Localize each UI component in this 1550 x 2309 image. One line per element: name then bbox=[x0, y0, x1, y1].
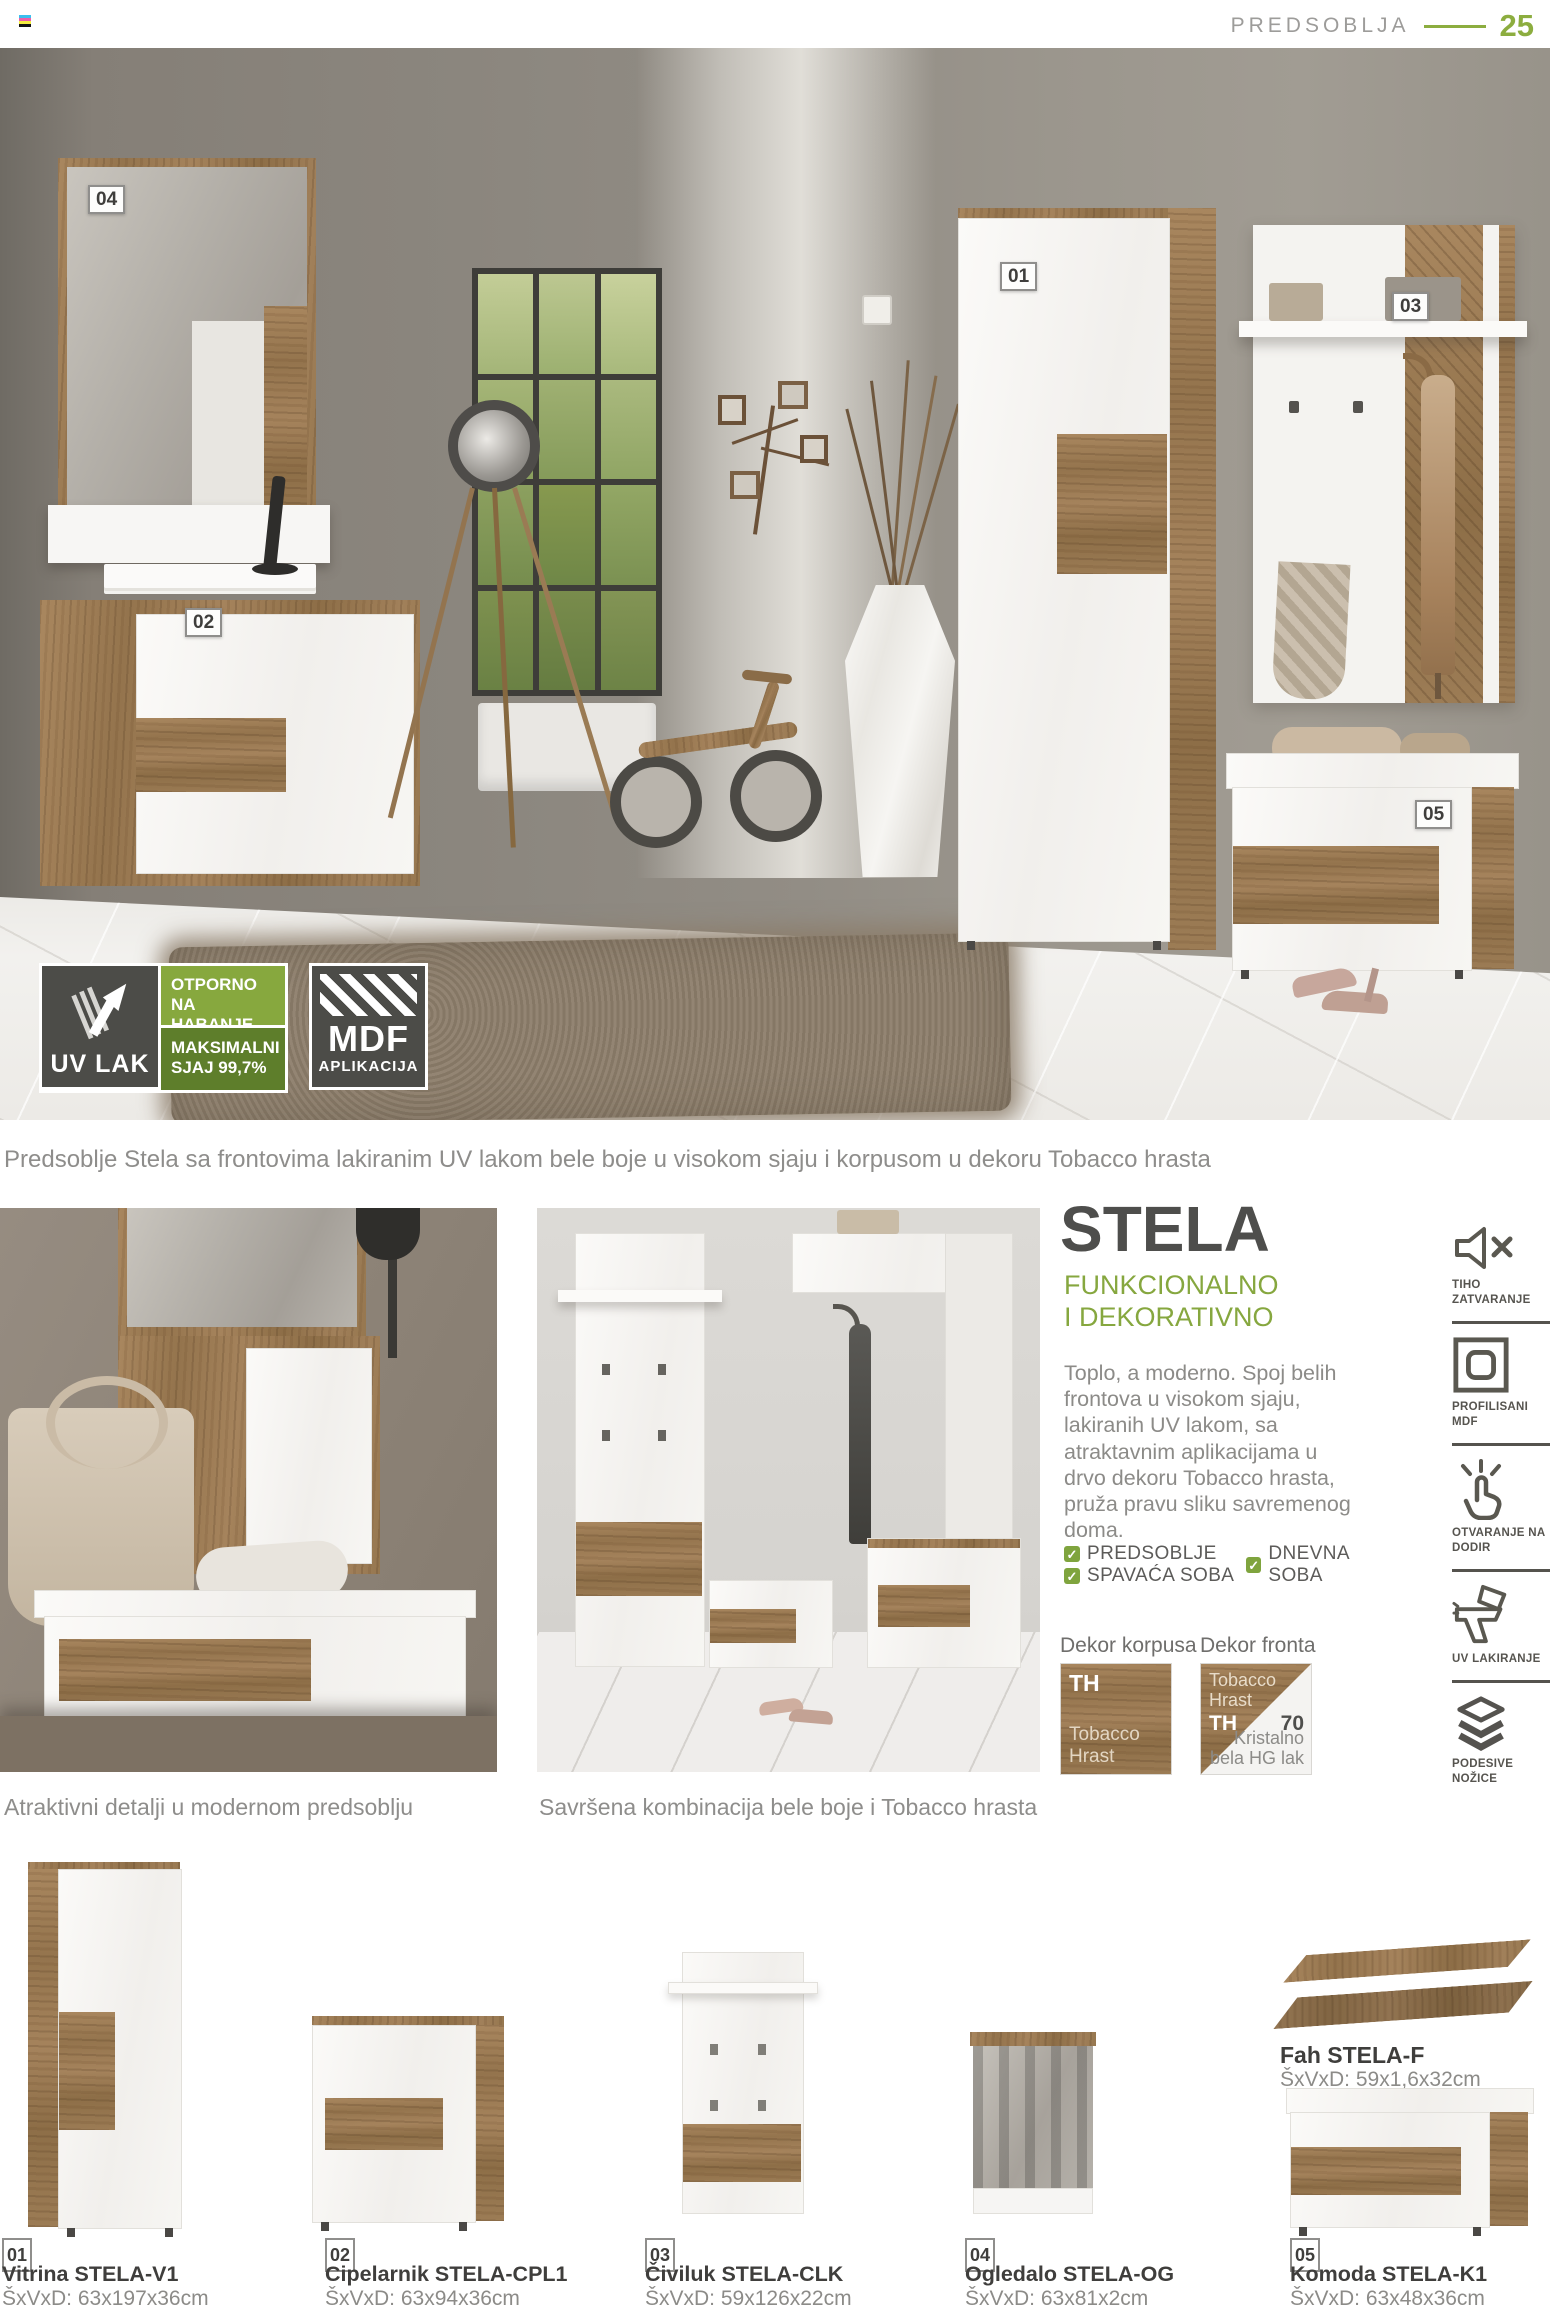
light-switch bbox=[862, 295, 892, 325]
civiluk-hook bbox=[758, 2100, 766, 2111]
ogledalo-glass bbox=[973, 2046, 1093, 2188]
product-dims: ŠxVxD: 63x48x36cm bbox=[1290, 2287, 1485, 2309]
page-number: 25 bbox=[1500, 8, 1534, 44]
feature-adjustable-feet: PODESIVE NOŽICE bbox=[1452, 1680, 1550, 1800]
decor-swatch-korpus: TH Tobacco Hrast bbox=[1060, 1663, 1172, 1775]
series-subtitle-line2: I DEKORATIVNO bbox=[1064, 1302, 1279, 1334]
vitrina-wood-applique bbox=[59, 2012, 115, 2130]
room-label: DNEVNA SOBA bbox=[1268, 1543, 1404, 1587]
uv-green-boxes: OTPORNO NA HABANJE MAKSIMALNI SJAJ 99,7% bbox=[161, 966, 285, 1090]
hero-tag-02: 02 bbox=[185, 608, 222, 637]
hero-tag-01: 01 bbox=[1000, 262, 1037, 291]
bench-wood-band bbox=[1233, 846, 1439, 924]
table-lamp-shade bbox=[356, 1208, 420, 1260]
hero-photo: 04 02 01 03 05 UV LAK OTPORNO NA HABANJE… bbox=[0, 48, 1550, 1120]
spray-gun-icon bbox=[1452, 1584, 1514, 1646]
series-subtitle-line1: FUNKCIONALNO bbox=[1064, 1270, 1279, 1302]
combo-cabinet-wood-band bbox=[878, 1585, 970, 1627]
decor-front-white-name-line2: bela HG lak bbox=[1210, 1748, 1304, 1768]
combo-coatrack-panel bbox=[575, 1233, 705, 1667]
header-rule bbox=[1424, 25, 1486, 28]
civiluk-wood-band bbox=[683, 2124, 801, 2182]
feature-quiet-close: TIHO ZATVARANJE bbox=[1452, 1212, 1550, 1321]
twig bbox=[899, 404, 960, 607]
decor-front-heading: Dekor fronta bbox=[1200, 1634, 1316, 1658]
room-label: PREDSOBLJE bbox=[1087, 1543, 1217, 1565]
balance-bike bbox=[610, 660, 825, 860]
feature-touch-open: OTVARANJE NA DODIR bbox=[1452, 1443, 1550, 1569]
product-name: Vitrina STELA-V1 bbox=[2, 2262, 178, 2287]
room-spavaca-soba: ✓ SPAVAĆA SOBA bbox=[1064, 1565, 1234, 1587]
bag-handle bbox=[46, 1376, 168, 1469]
product-name: Komoda STELA-K1 bbox=[1290, 2262, 1487, 2287]
series-description: Toplo, a moderno. Spoj belih frontova u … bbox=[1064, 1360, 1364, 1544]
ogledalo-bottom-bar bbox=[973, 2188, 1093, 2214]
photo-frame bbox=[718, 395, 746, 425]
feature-profiled-mdf: PROFILISANI MDF bbox=[1452, 1321, 1550, 1443]
cabinet-01-front bbox=[958, 218, 1170, 942]
coat-hook bbox=[1353, 401, 1363, 413]
product-image-komoda bbox=[1290, 2088, 1528, 2232]
decor-front-wood-name-line2: Hrast bbox=[1209, 1690, 1276, 1710]
profiled-mdf-icon bbox=[1452, 1336, 1510, 1394]
product-name: Cipelarnik STELA-CPL1 bbox=[325, 2262, 568, 2287]
product-name: Čiviluk STELA-CLK bbox=[645, 2262, 843, 2287]
photo-frame bbox=[778, 381, 808, 409]
combo-hook bbox=[602, 1430, 610, 1441]
gallery-left-caption: Atraktivni detalji u modernom predsoblju bbox=[4, 1794, 413, 1821]
checkbox-checked-icon: ✓ bbox=[1064, 1546, 1080, 1562]
umbrella bbox=[1421, 375, 1455, 675]
vitrina-side-wood bbox=[28, 1869, 58, 2227]
window-pane bbox=[601, 380, 656, 480]
uv-arrow-icon bbox=[58, 972, 136, 1050]
hero-caption: Predsoblje Stela sa frontovima lakiranim… bbox=[4, 1146, 1211, 1174]
decor-korpus-heading: Dekor korpusa bbox=[1060, 1634, 1197, 1658]
feature-label: PODESIVE NOŽICE bbox=[1452, 1757, 1550, 1787]
decor-swatch-front: Tobacco Hrast TH 70 Kristalno bela HG la… bbox=[1200, 1663, 1312, 1775]
hero-tag-04: 04 bbox=[88, 185, 125, 214]
decor-name: Tobacco Hrast bbox=[1069, 1724, 1171, 1767]
detail-bench-body bbox=[44, 1616, 466, 1726]
feature-label: UV LAKIRANJE bbox=[1452, 1652, 1550, 1667]
gallery-photo-middle bbox=[537, 1208, 1040, 1772]
window-pane bbox=[539, 485, 594, 585]
series-title: STELA bbox=[1060, 1192, 1270, 1266]
touch-open-icon bbox=[1452, 1458, 1510, 1520]
photo-frame bbox=[730, 471, 760, 499]
decor-front-white-name: Kristalno bela HG lak bbox=[1210, 1728, 1304, 1768]
window-pane bbox=[539, 274, 594, 374]
catalog-page: PREDSOBLJA 25 bbox=[0, 0, 1550, 2309]
fah-shelf-bottom bbox=[1271, 1981, 1534, 2029]
detail-bench-top bbox=[34, 1590, 476, 1618]
civiluk-hook bbox=[758, 2044, 766, 2055]
detail-sideboard-door bbox=[246, 1348, 372, 1564]
combo-bench-wood-band bbox=[710, 1609, 796, 1643]
rug bbox=[169, 933, 1012, 1120]
photo-frame bbox=[800, 435, 828, 463]
series-subtitle: FUNKCIONALNO I DEKORATIVNO bbox=[1064, 1270, 1279, 1334]
wall-decor-tree bbox=[700, 375, 840, 545]
combo-cabinet-top bbox=[868, 1539, 1020, 1548]
decor-front-wood-name-line1: Tobacco bbox=[1209, 1670, 1276, 1690]
black-bar bbox=[19, 24, 31, 27]
feature-uv-lacquer: UV LAKIRANJE bbox=[1452, 1569, 1550, 1680]
decor-front-white-name-line1: Kristalno bbox=[1210, 1728, 1304, 1748]
combo-cabinet bbox=[867, 1538, 1021, 1668]
cabinet-01 bbox=[958, 208, 1216, 956]
checkbox-checked-icon: ✓ bbox=[1246, 1557, 1261, 1573]
umbrella-tip bbox=[1435, 673, 1441, 699]
detail-mirror-glass bbox=[127, 1208, 357, 1327]
cabinet-02-wood-applique bbox=[136, 718, 286, 792]
mdf-stripes-icon bbox=[320, 974, 417, 1016]
uv-lak-badge: UV LAK OTPORNO NA HABANJE MAKSIMALNI SJA… bbox=[39, 963, 288, 1093]
bench-top bbox=[1226, 753, 1519, 789]
cabinet-02 bbox=[40, 600, 420, 886]
mdf-sub-label: APLIKACIJA bbox=[312, 1058, 425, 1075]
twigs bbox=[828, 360, 978, 610]
window-pane bbox=[478, 485, 533, 585]
gallery-middle-caption: Savršena kombinacija bele boje i Tobacco… bbox=[539, 1794, 1037, 1821]
bench-side-wood bbox=[1470, 787, 1514, 969]
speaker-mute-icon bbox=[1452, 1224, 1518, 1272]
window-pane bbox=[601, 485, 656, 585]
combo-panel-wood-band bbox=[576, 1522, 702, 1596]
storage-box bbox=[1269, 283, 1323, 321]
wall-panel-03 bbox=[1253, 225, 1515, 703]
fah-shelf-top bbox=[1281, 1939, 1532, 1982]
phone-base bbox=[252, 563, 298, 575]
max-gloss-label: MAKSIMALNI SJAJ 99,7% bbox=[161, 1028, 285, 1090]
product-image-fah bbox=[1272, 1944, 1540, 2040]
vitrina-front bbox=[58, 1869, 182, 2229]
combo-bench bbox=[709, 1580, 833, 1668]
cipelarnik-top bbox=[312, 2016, 504, 2025]
fah-name: Fah STELA-F bbox=[1280, 2042, 1424, 2069]
mirror-glass bbox=[67, 167, 307, 533]
combo-box bbox=[837, 1210, 899, 1234]
product-image-civiluk bbox=[682, 1952, 802, 2212]
adjustable-feet-icon bbox=[1452, 1695, 1510, 1751]
combo-hook bbox=[602, 1364, 610, 1375]
hero-tag-05: 05 bbox=[1415, 800, 1452, 829]
coat-hook bbox=[1289, 401, 1299, 413]
combo-hook bbox=[658, 1364, 666, 1375]
checkbox-checked-icon: ✓ bbox=[1064, 1568, 1080, 1584]
combo-umbrella bbox=[849, 1324, 871, 1544]
feature-label: OTVARANJE NA DODIR bbox=[1452, 1526, 1550, 1556]
komoda-wood-band bbox=[1291, 2147, 1461, 2195]
panel-wood-edge bbox=[1499, 225, 1515, 703]
print-registration-mark bbox=[19, 15, 31, 27]
uv-lak-label: UV LAK bbox=[42, 1050, 158, 1079]
detail-mirror-frame bbox=[118, 1208, 366, 1336]
civiluk-hook bbox=[710, 2044, 718, 2055]
cabinet-01-wood-applique bbox=[1057, 434, 1167, 574]
branch bbox=[753, 405, 775, 534]
uv-lak-box: UV LAK bbox=[42, 966, 158, 1087]
room-predsoblje: ✓ PREDSOBLJE bbox=[1064, 1543, 1217, 1565]
cipelarnik-front bbox=[312, 2025, 476, 2223]
window-pane bbox=[539, 380, 594, 480]
mirror-shelf bbox=[48, 505, 330, 563]
wear-resistant-label: OTPORNO NA HABANJE bbox=[161, 966, 285, 1025]
cabinet-01-top-edge bbox=[958, 208, 1168, 218]
feature-list: TIHO ZATVARANJE PROFILISANI MDF OTVARANJ… bbox=[1452, 1212, 1550, 1799]
product-image-ogledalo bbox=[973, 2032, 1093, 2214]
page-header: PREDSOBLJA 25 bbox=[1231, 8, 1534, 44]
floor-lamp-head bbox=[448, 400, 540, 492]
feature-label: TIHO ZATVARANJE bbox=[1452, 1278, 1550, 1308]
detail-bench-wood-band bbox=[59, 1639, 311, 1701]
combo-shelf bbox=[558, 1290, 722, 1302]
gallery-photo-left bbox=[0, 1208, 497, 1772]
product-dims: ŠxVxD: 63x197x36cm bbox=[2, 2287, 209, 2309]
panel-shelf bbox=[1239, 321, 1527, 337]
product-dims: ŠxVxD: 63x94x36cm bbox=[325, 2287, 520, 2309]
feature-label: PROFILISANI MDF bbox=[1452, 1400, 1550, 1430]
product-image-vitrina bbox=[28, 1862, 180, 2234]
cipelarnik-wood-band bbox=[325, 2098, 443, 2150]
combo-hook bbox=[658, 1430, 666, 1441]
mdf-label: MDF bbox=[312, 1018, 425, 1060]
mdf-box: MDF APLIKACIJA bbox=[312, 966, 425, 1087]
komoda-top bbox=[1286, 2088, 1534, 2114]
komoda-front bbox=[1290, 2112, 1490, 2228]
bench-05 bbox=[1232, 753, 1517, 975]
section-title: PREDSOBLJA bbox=[1231, 14, 1410, 38]
komoda-side-wood bbox=[1488, 2112, 1528, 2226]
mdf-badge: MDF APLIKACIJA bbox=[309, 963, 428, 1090]
vitrina-top-edge bbox=[28, 1862, 180, 1869]
room-checklist: ✓ PREDSOBLJE ✓ SPAVAĆA SOBA ✓ DNEVNA SOB… bbox=[1064, 1543, 1404, 1587]
ogledalo-wood-top bbox=[970, 2032, 1096, 2046]
bike-handlebar bbox=[742, 669, 793, 684]
window-pane bbox=[478, 274, 533, 374]
bike-wheel bbox=[730, 750, 822, 842]
detail-rug bbox=[0, 1716, 497, 1772]
product-dims: ŠxVxD: 59x126x22cm bbox=[645, 2287, 852, 2309]
decor-code: TH bbox=[1069, 1670, 1100, 1697]
room-dnevna-soba: ✓ DNEVNA SOBA bbox=[1246, 1543, 1404, 1587]
civiluk-shelf bbox=[668, 1982, 818, 1994]
decor-front-wood-name: Tobacco Hrast bbox=[1209, 1670, 1276, 1710]
room-label: SPAVAĆA SOBA bbox=[1087, 1565, 1234, 1587]
product-name: Ogledalo STELA-OG bbox=[965, 2262, 1174, 2287]
window-pane bbox=[601, 274, 656, 374]
twig bbox=[845, 409, 897, 608]
scarf bbox=[1271, 561, 1350, 701]
cabinet-01-side bbox=[1168, 208, 1216, 950]
pedestal-vase bbox=[845, 585, 955, 877]
mirror-reflection bbox=[192, 321, 264, 533]
hero-tag-03: 03 bbox=[1392, 292, 1429, 321]
bike-wheel bbox=[610, 756, 702, 848]
product-image-cipelarnik bbox=[312, 2016, 504, 2228]
cipelarnik-side-wood bbox=[474, 2025, 504, 2221]
civiluk-hook bbox=[710, 2100, 718, 2111]
product-dims: ŠxVxD: 63x81x2cm bbox=[965, 2287, 1148, 2309]
